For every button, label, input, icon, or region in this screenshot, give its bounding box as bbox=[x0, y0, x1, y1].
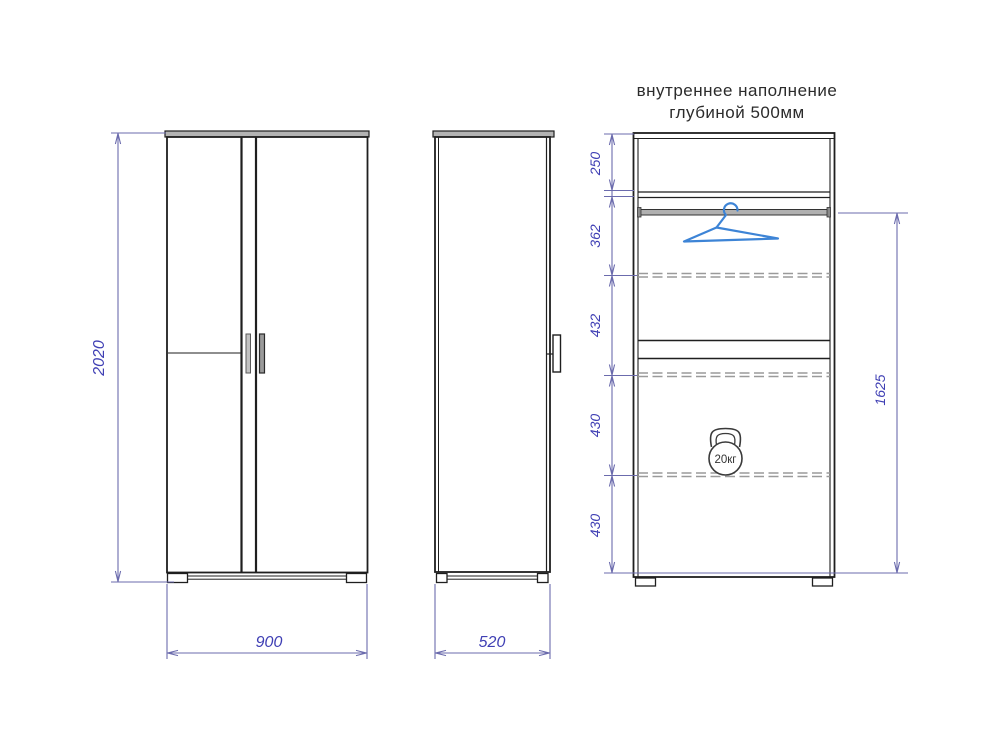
front-plinth bbox=[187, 576, 347, 579]
front-foot-right bbox=[347, 574, 367, 583]
side-foot-right bbox=[538, 574, 549, 583]
depth-value: 520 bbox=[479, 634, 506, 651]
section-value-0: 250 bbox=[587, 152, 603, 177]
section-value-2: 432 bbox=[587, 314, 603, 338]
height-value: 2020 bbox=[91, 340, 108, 377]
dim-width-900: 900 bbox=[167, 584, 367, 659]
internal-foot-right bbox=[813, 578, 833, 586]
front-view bbox=[165, 131, 369, 583]
side-plinth bbox=[447, 576, 538, 579]
hanging-rod bbox=[640, 210, 828, 216]
side-view bbox=[433, 131, 561, 583]
door-handle-left bbox=[246, 334, 251, 373]
dim-depth-520: 520 bbox=[435, 584, 550, 659]
drawing-canvas: 20кг внутреннее наполнение глубиной 500м… bbox=[0, 0, 1000, 750]
section-value-1: 362 bbox=[587, 224, 603, 248]
side-door-handle bbox=[553, 335, 561, 372]
width-value: 900 bbox=[256, 634, 283, 651]
section-value-3: 430 bbox=[587, 414, 603, 438]
drawing-title: внутреннее наполнение глубиной 500мм bbox=[637, 81, 838, 122]
internal-view: 20кг bbox=[634, 133, 835, 586]
internal-foot-left bbox=[636, 578, 656, 586]
rod-bracket-right bbox=[827, 208, 831, 218]
front-foot-left bbox=[168, 574, 188, 583]
section-value-4: 430 bbox=[587, 514, 603, 538]
title-line-1: внутреннее наполнение bbox=[637, 81, 838, 100]
internal-body-outline bbox=[634, 133, 835, 577]
title-line-2: глубиной 500мм bbox=[669, 103, 804, 122]
dim-internal-sections: 250 362 432 430 430 bbox=[587, 134, 637, 573]
max-load-label: 20кг bbox=[714, 454, 736, 466]
side-foot-left bbox=[437, 574, 448, 583]
side-body-outline bbox=[435, 137, 550, 572]
wardrobe-technical-drawing: 20кг внутреннее наполнение глубиной 500м… bbox=[0, 0, 1000, 750]
hanging-zone-value: 1625 bbox=[872, 374, 888, 405]
rod-bracket-left bbox=[638, 208, 642, 218]
dim-height-2020: 2020 bbox=[91, 133, 174, 582]
door-handle-right bbox=[260, 334, 265, 373]
front-body-outline bbox=[167, 137, 368, 573]
